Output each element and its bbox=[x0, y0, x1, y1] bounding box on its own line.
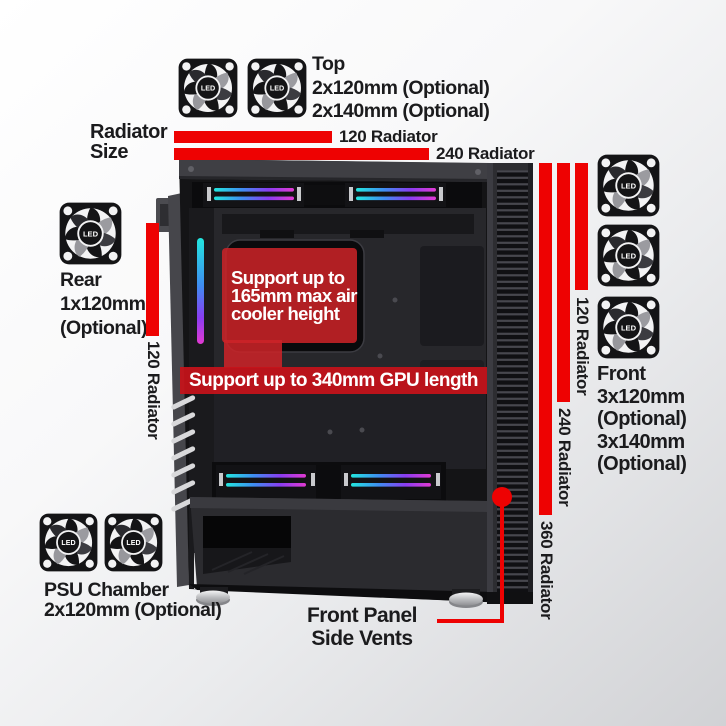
psu-mount-spec1: 2x120mm (Optional) bbox=[44, 601, 221, 621]
rear-rgb-strip bbox=[197, 238, 204, 344]
psu-fan-icon-1 bbox=[39, 512, 98, 573]
front-mount-spec2: (Optional) bbox=[597, 408, 686, 431]
top-mount-spec1: 2x120mm (Optional) bbox=[312, 77, 489, 101]
front-mount-note: Front 3x120mm (Optional) 3x140mm (Option… bbox=[597, 363, 686, 476]
psu-fan-icon-2 bbox=[104, 512, 163, 573]
rear-mount-spec2: (Optional) bbox=[60, 316, 147, 340]
front-panel-note: Front Panel Side Vents bbox=[282, 604, 442, 650]
top-fan-icon-2 bbox=[247, 57, 307, 119]
top-240-radiator-label: 240 Radiator bbox=[436, 144, 534, 164]
front-mount-spec3: 3x140mm bbox=[597, 431, 686, 454]
rear-mount-title: Rear bbox=[60, 268, 147, 292]
cooler-clearance-badge: Support up to 165mm max air cooler heigh… bbox=[222, 248, 357, 343]
front-fan-icon-1 bbox=[597, 154, 660, 217]
rear-120-radiator-bar bbox=[146, 223, 159, 336]
top-240-radiator-bar bbox=[174, 148, 429, 160]
top-mount-note: Top 2x120mm (Optional) 2x140mm (Optional… bbox=[312, 53, 489, 124]
front-mount-spec4: (Optional) bbox=[597, 453, 686, 476]
top-120-radiator-bar bbox=[174, 131, 332, 143]
top-mount-title: Top bbox=[312, 53, 489, 77]
gpu-clearance-badge: Support up to 340mm GPU length bbox=[180, 367, 487, 394]
front-360-radiator-label: 360 Radiator bbox=[536, 521, 556, 619]
front-120-radiator-label: 120 Radiator bbox=[572, 297, 592, 395]
front-120-radiator-bar bbox=[575, 163, 588, 290]
psu-mount-title: PSU Chamber bbox=[44, 581, 221, 601]
front-mount-spec1: 3x120mm bbox=[597, 386, 686, 409]
front-240-radiator-label: 240 Radiator bbox=[554, 408, 574, 506]
rear-120-radiator-label: 120 Radiator bbox=[143, 341, 163, 439]
cooler-badge-line3: cooler height bbox=[231, 305, 357, 323]
top-120-radiator-label: 120 Radiator bbox=[339, 127, 437, 147]
top-mount-spec2: 2x140mm (Optional) bbox=[312, 100, 489, 124]
infographic-canvas: LED bbox=[0, 0, 726, 726]
rear-mount-note: Rear 1x120mm (Optional) bbox=[60, 268, 147, 340]
front-panel-line1: Front Panel bbox=[282, 604, 442, 627]
cooler-badge-tab bbox=[224, 340, 282, 368]
radiator-size-line2: Size bbox=[90, 143, 167, 163]
front-panel-line2: Side Vents bbox=[282, 627, 442, 650]
top-fan-icon-1 bbox=[178, 57, 238, 119]
rear-mount-spec1: 1x120mm bbox=[60, 292, 147, 316]
psu-mount-note: PSU Chamber 2x120mm (Optional) bbox=[44, 581, 221, 620]
front-360-radiator-bar bbox=[539, 163, 552, 515]
front-fan-icon-3 bbox=[597, 296, 660, 359]
case-foot bbox=[449, 593, 483, 606]
front-fan-icon-2 bbox=[597, 224, 660, 287]
radiator-size-legend: Radiator Size bbox=[90, 123, 167, 162]
rear-fan-icon bbox=[59, 202, 122, 265]
bottom-rgb-fan-strip bbox=[226, 474, 306, 478]
front-mount-title: Front bbox=[597, 363, 686, 386]
radiator-size-line1: Radiator bbox=[90, 123, 167, 143]
top-rgb-fan-strip bbox=[214, 188, 294, 192]
front-240-radiator-bar bbox=[557, 163, 570, 402]
front-panel-callout-dot bbox=[492, 487, 512, 507]
